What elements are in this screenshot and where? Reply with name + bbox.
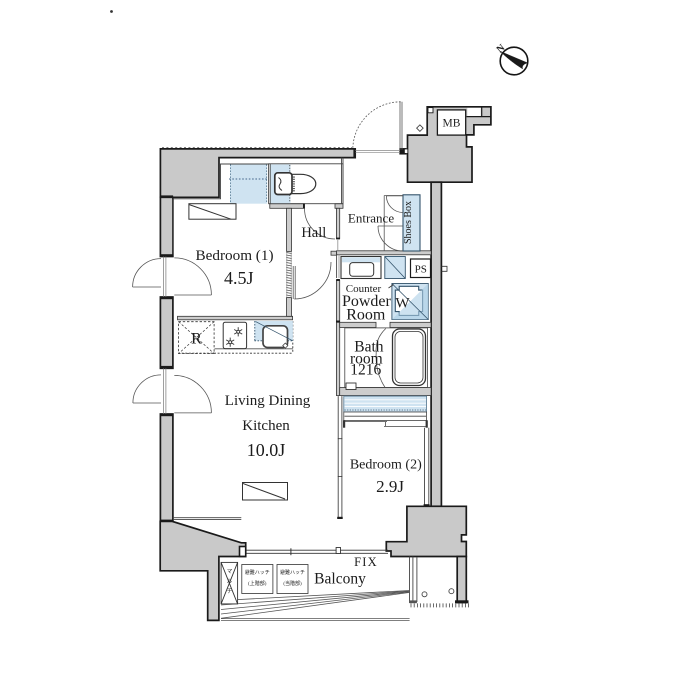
svg-text:ル: ル: [227, 579, 233, 585]
svg-text:MB: MB: [443, 118, 461, 130]
svg-text:W: W: [395, 296, 410, 312]
svg-text:Living Dining: Living Dining: [225, 393, 311, 409]
svg-text:Shoes Box: Shoes Box: [403, 201, 414, 244]
svg-text:Balcony: Balcony: [314, 570, 366, 587]
svg-text:Bedroom (2): Bedroom (2): [350, 457, 422, 472]
svg-text:(当階部): (当階部): [283, 580, 302, 587]
svg-text:FIX: FIX: [354, 555, 378, 569]
svg-text:チ: チ: [227, 588, 233, 595]
svg-text:4.5J: 4.5J: [224, 268, 254, 288]
svg-text:避難ハッチ: 避難ハッチ: [245, 569, 270, 576]
svg-text:10.0J: 10.0J: [247, 440, 286, 460]
svg-text:避難ハッチ: 避難ハッチ: [280, 569, 305, 576]
svg-text:2.9J: 2.9J: [376, 477, 404, 496]
svg-text:Bedroom (1): Bedroom (1): [195, 247, 273, 264]
svg-text:PS: PS: [415, 264, 427, 276]
svg-text:マ: マ: [227, 568, 233, 575]
svg-text:(上階部): (上階部): [248, 580, 267, 587]
svg-text:Kitchen: Kitchen: [242, 418, 290, 434]
svg-text:Entrance: Entrance: [348, 210, 394, 225]
svg-text:1216: 1216: [350, 362, 381, 379]
svg-text:Room: Room: [346, 307, 386, 324]
svg-text:R: R: [191, 331, 202, 348]
svg-text:Hall: Hall: [301, 225, 326, 241]
